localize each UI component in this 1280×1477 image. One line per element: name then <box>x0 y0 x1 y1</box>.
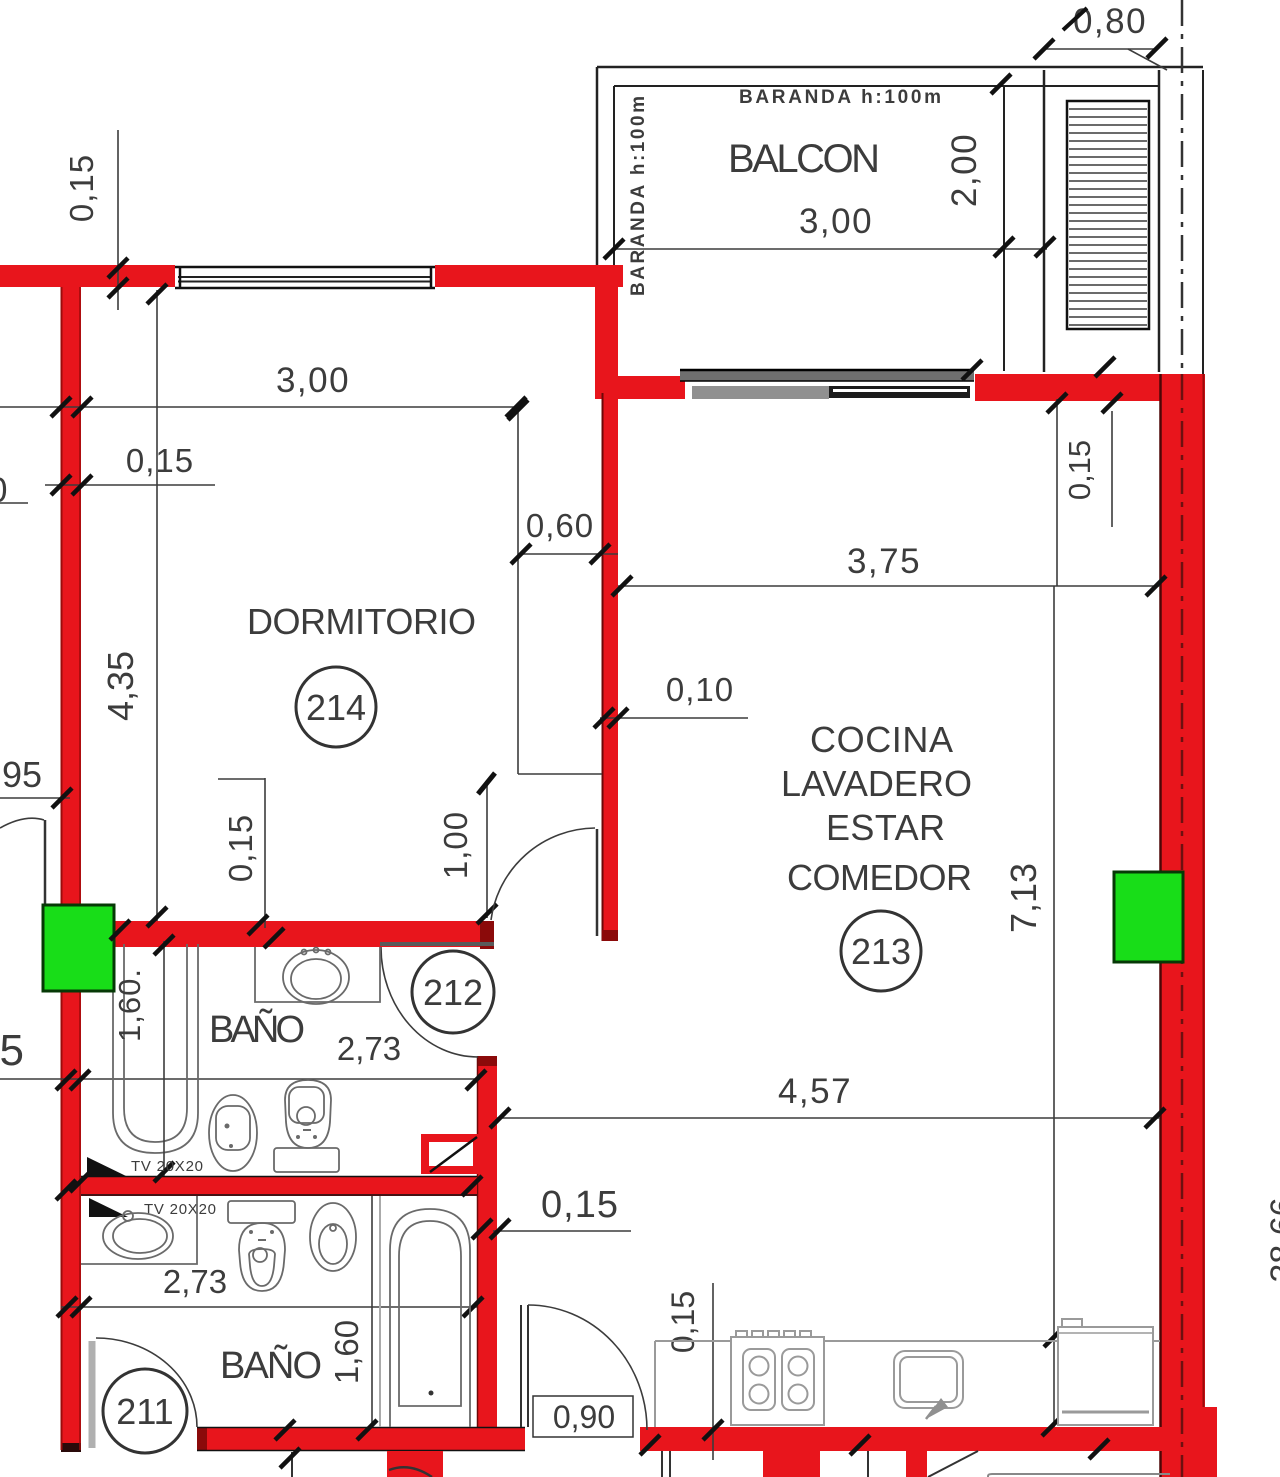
svg-text:1,00: 1,00 <box>437 811 474 879</box>
svg-text:211: 211 <box>116 1391 173 1432</box>
svg-text:2,73: 2,73 <box>163 1263 227 1300</box>
svg-text:0,80: 0,80 <box>1073 2 1147 41</box>
svg-text:213: 213 <box>851 931 911 972</box>
svg-text:3,00: 3,00 <box>799 202 873 241</box>
svg-text:BAÑO: BAÑO <box>209 1008 305 1051</box>
svg-text:3,00: 3,00 <box>276 361 350 400</box>
svg-text:3,75: 3,75 <box>847 542 921 581</box>
svg-text:BALCON: BALCON <box>728 137 880 181</box>
svg-text:0,15: 0,15 <box>222 814 259 882</box>
svg-text:1,60.: 1,60. <box>112 968 147 1042</box>
svg-text:0,10: 0,10 <box>666 671 734 708</box>
svg-text:0,15: 0,15 <box>1062 440 1097 500</box>
svg-text:38,66: 38,66 <box>1264 1197 1280 1282</box>
svg-text:LAVADERO: LAVADERO <box>781 763 971 804</box>
svg-text:0,15: 0,15 <box>63 154 100 222</box>
svg-text:0,15: 0,15 <box>126 442 194 479</box>
svg-text:0,15: 0,15 <box>665 1291 701 1353</box>
svg-text:0,90: 0,90 <box>553 1399 615 1435</box>
svg-text:0: 0 <box>0 471 7 510</box>
svg-text:7,13: 7,13 <box>1003 863 1044 933</box>
svg-text:212: 212 <box>423 972 483 1013</box>
svg-text:BAÑO: BAÑO <box>220 1344 322 1387</box>
svg-text:COCINA: COCINA <box>810 719 953 760</box>
svg-text:COMEDOR: COMEDOR <box>787 857 971 898</box>
svg-text:95: 95 <box>2 754 42 795</box>
svg-text:0,60: 0,60 <box>526 507 594 544</box>
svg-text:214: 214 <box>306 687 366 728</box>
svg-text:ESTAR: ESTAR <box>826 807 944 848</box>
svg-text:4,35: 4,35 <box>100 651 141 721</box>
svg-text:DORMITORIO: DORMITORIO <box>247 601 475 642</box>
svg-text:1,60: 1,60 <box>328 1320 365 1384</box>
svg-text:2,73: 2,73 <box>337 1030 401 1067</box>
svg-text:4,57: 4,57 <box>778 1072 852 1111</box>
svg-text:0,15: 0,15 <box>541 1184 619 1226</box>
svg-text:2,00: 2,00 <box>945 133 984 207</box>
svg-text:TV 20X20: TV 20X20 <box>131 1158 203 1175</box>
svg-text:5: 5 <box>0 1026 24 1075</box>
